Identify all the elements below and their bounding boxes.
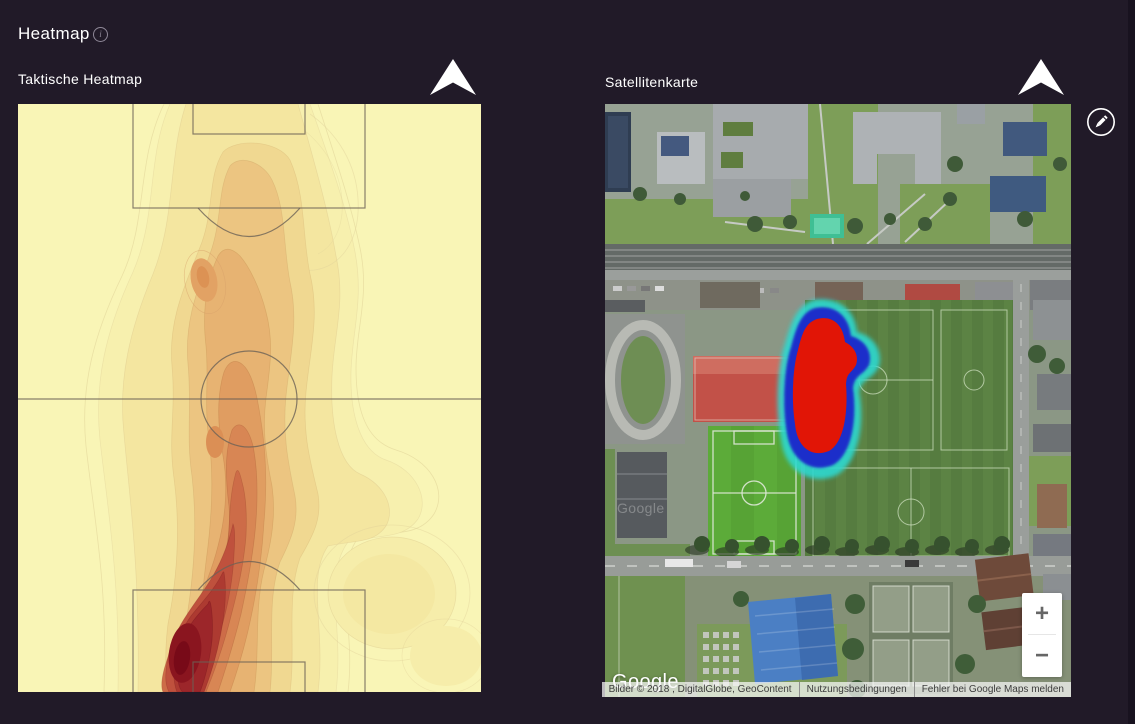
attribution-terms-link[interactable]: Nutzungsbedingungen bbox=[799, 682, 914, 697]
tactical-heatmap-chart bbox=[18, 104, 481, 692]
satellite-imagery bbox=[605, 104, 1071, 697]
tactical-panel-title: Taktische Heatmap bbox=[18, 71, 142, 87]
map-zoom-control: + − bbox=[1022, 593, 1062, 677]
map-attribution: Bilder © 2018 , DigitalGlobe, GeoContent… bbox=[615, 682, 1071, 697]
google-watermark: Google bbox=[617, 500, 665, 516]
scrollbar-track[interactable] bbox=[1128, 0, 1135, 724]
zoom-out-button[interactable]: − bbox=[1022, 635, 1062, 676]
north-arrow-icon bbox=[1016, 59, 1066, 95]
attribution-report-link[interactable]: Fehler bei Google Maps melden bbox=[914, 682, 1071, 697]
info-icon[interactable]: i bbox=[93, 27, 108, 42]
attribution-imagery: Bilder © 2018 , DigitalGlobe, GeoContent bbox=[602, 682, 799, 697]
page-title: Heatmap bbox=[18, 24, 90, 44]
edit-map-button[interactable] bbox=[1086, 107, 1116, 137]
satellite-panel-title: Satellitenkarte bbox=[605, 74, 698, 90]
pencil-icon bbox=[1086, 107, 1116, 137]
zoom-in-button[interactable]: + bbox=[1022, 593, 1062, 634]
satellite-map[interactable]: Google Google + − Bilder © 2018 , Digita… bbox=[605, 104, 1071, 697]
north-arrow-icon bbox=[428, 59, 478, 95]
